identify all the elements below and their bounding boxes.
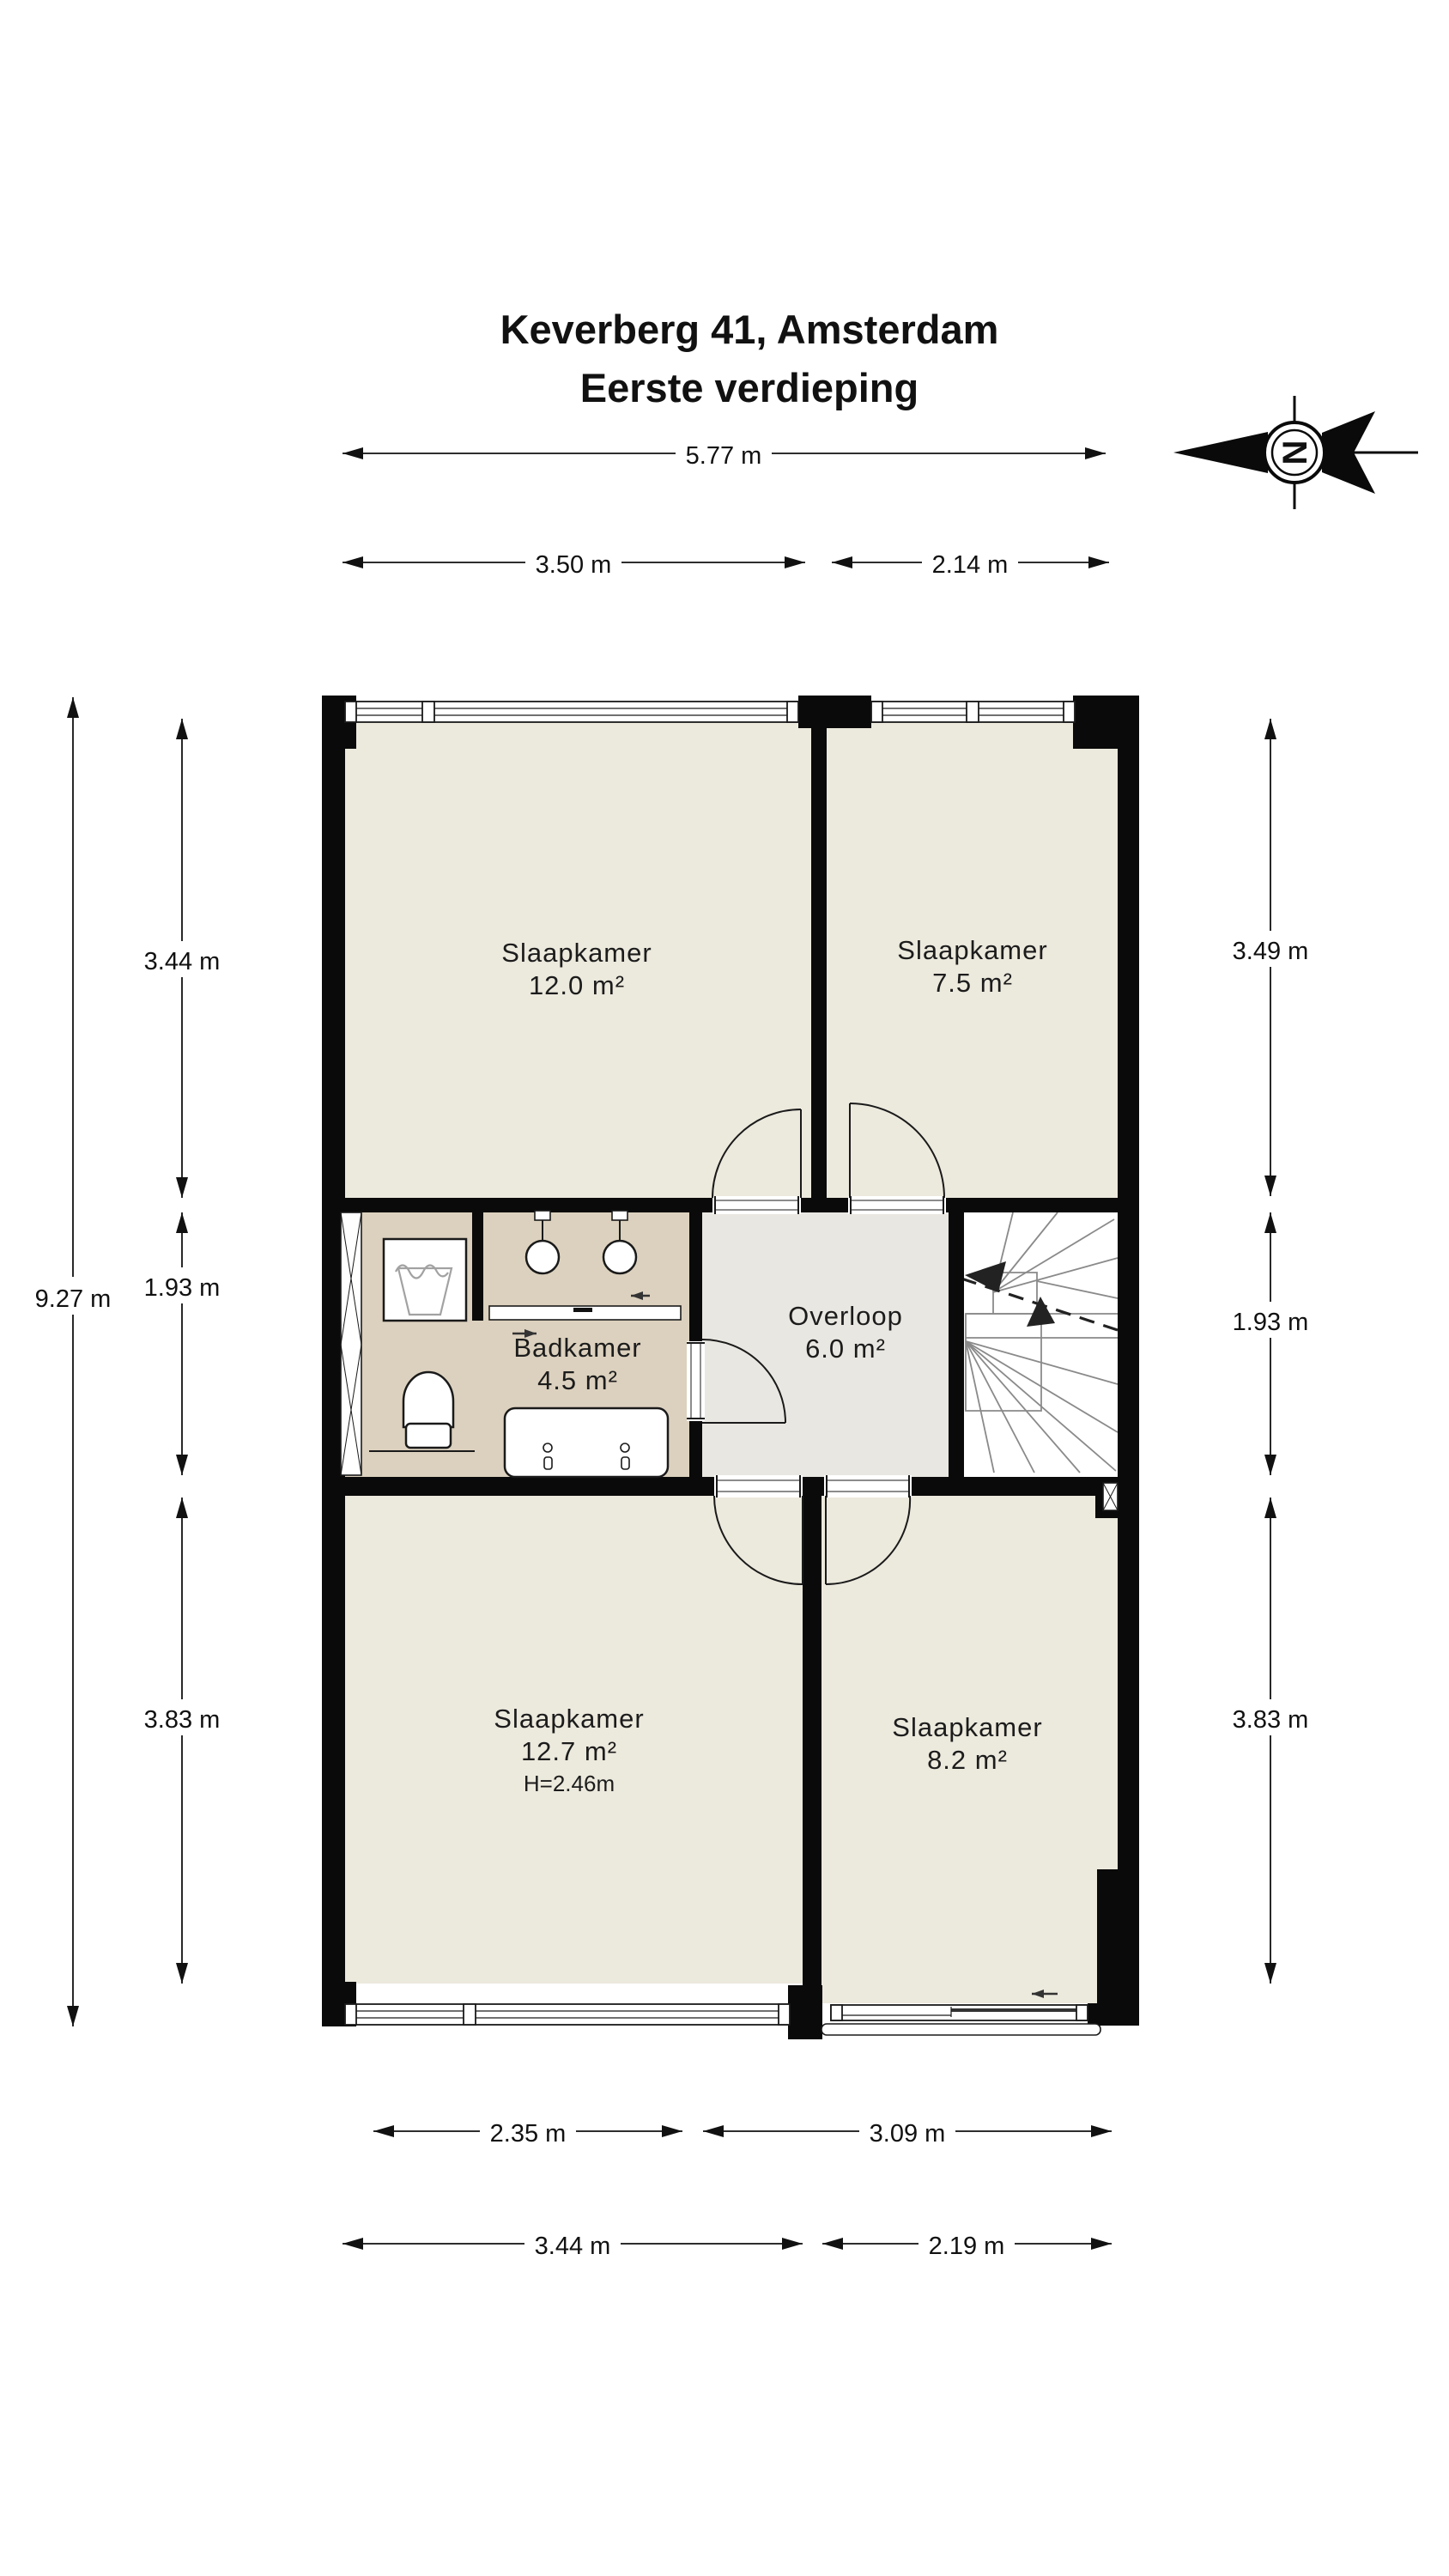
- dim-right-middle: 1.93 m: [1222, 1212, 1319, 1475]
- dim-right-top: 3.49 m: [1222, 719, 1319, 1196]
- duct-shaft-icon: [1103, 1483, 1118, 1510]
- dim-value: 2.14 m: [932, 551, 1009, 579]
- dim-value: 3.44 m: [535, 2233, 611, 2260]
- room-slaapkamer-8-2-floor-lower: [822, 1869, 1097, 2003]
- compass-letter: N: [1276, 440, 1314, 465]
- dim-value: 2.19 m: [929, 2233, 1005, 2260]
- dim-left-bottom: 3.83 m: [134, 1498, 230, 1984]
- dim-bottom-inner-left: 2.35 m: [373, 2115, 682, 2148]
- window-bottom-left: [345, 2004, 790, 2025]
- duct-shaft-icon: [341, 1212, 361, 1475]
- room-label-area: 7.5 m²: [932, 968, 1013, 998]
- dim-bottom-inner-right: 3.09 m: [703, 2115, 1112, 2148]
- dim-value: 1.93 m: [1233, 1309, 1309, 1336]
- dim-value: 3.83 m: [1233, 1706, 1309, 1734]
- dim-value: 3.83 m: [144, 1706, 221, 1734]
- dim-value: 9.27 m: [35, 1285, 112, 1313]
- room-label-name: Slaapkamer: [892, 1712, 1042, 1742]
- window-top-left: [345, 702, 798, 722]
- dim-right-bottom: 3.83 m: [1222, 1498, 1319, 1984]
- toilet-icon: [403, 1372, 453, 1448]
- dim-value: 3.50 m: [536, 551, 612, 579]
- room-label-area: 6.0 m²: [805, 1334, 886, 1364]
- dim-top-right: 2.14 m: [832, 546, 1109, 579]
- glass-partition: [489, 1306, 681, 1320]
- room-label-name: Overloop: [788, 1301, 903, 1331]
- dim-value: 2.35 m: [490, 2120, 567, 2148]
- room-label-area: 8.2 m²: [927, 1745, 1008, 1775]
- dim-left-top: 3.44 m: [134, 719, 230, 1198]
- room-label-area: 4.5 m²: [537, 1365, 618, 1395]
- window-top-right: [871, 702, 1075, 722]
- title-floor: Eerste verdieping: [580, 365, 919, 410]
- dim-value: 5.77 m: [686, 442, 762, 470]
- room-label-name: Slaapkamer: [494, 1704, 644, 1734]
- room-label-area: 12.7 m²: [521, 1736, 617, 1766]
- dim-value: 3.44 m: [144, 948, 221, 975]
- sliding-door-bottom-right: [831, 2005, 1088, 2020]
- dim-top-total: 5.77 m: [343, 437, 1106, 470]
- dim-value: 3.49 m: [1233, 938, 1309, 965]
- dim-left-middle: 1.93 m: [134, 1212, 230, 1475]
- room-slaapkamer-8-2-floor-upper: [822, 1496, 1118, 1869]
- room-label-name: Slaapkamer: [897, 935, 1047, 965]
- room-label-name: Slaapkamer: [501, 938, 652, 968]
- dim-bottom-outer-left: 3.44 m: [343, 2227, 803, 2260]
- dim-bottom-outer-right: 2.19 m: [822, 2227, 1112, 2260]
- vanity-unit-icon: [505, 1408, 668, 1477]
- title-address: Keverberg 41, Amsterdam: [500, 307, 999, 352]
- dim-value: 1.93 m: [144, 1274, 221, 1302]
- dim-value: 3.09 m: [870, 2120, 946, 2148]
- plan-title: Keverberg 41, Amsterdam Eerste verdiepin…: [500, 307, 999, 410]
- floor-plan-canvas: Keverberg 41, Amsterdam Eerste verdiepin…: [0, 0, 1449, 2576]
- dim-top-left: 3.50 m: [343, 546, 805, 579]
- room-label-area: 12.0 m²: [529, 970, 625, 1000]
- washing-machine-icon: [384, 1239, 466, 1321]
- dim-left-total: 9.27 m: [19, 697, 127, 2026]
- balcony-railing: [822, 2024, 1100, 2035]
- room-label-ceiling-height: H=2.46m: [524, 1771, 615, 1796]
- compass-north-icon: N: [1173, 396, 1418, 509]
- room-label-name: Badkamer: [513, 1333, 641, 1363]
